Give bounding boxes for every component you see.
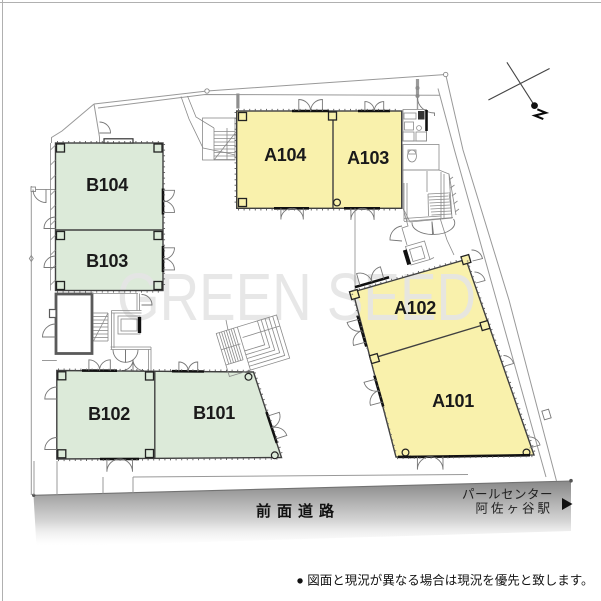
- svg-text:前面道路: 前面道路: [256, 502, 340, 520]
- svg-text:パールセンター: パールセンター: [462, 488, 553, 502]
- svg-text:● 図面と現況が異なる場合は現況を優先と致します。: ● 図面と現況が異なる場合は現況を優先と致します。: [296, 573, 593, 588]
- svg-text:B101: B101: [193, 403, 235, 423]
- svg-text:B104: B104: [86, 175, 128, 195]
- svg-text:阿佐ヶ谷駅: 阿佐ヶ谷駅: [475, 502, 553, 516]
- svg-text:A103: A103: [347, 148, 389, 168]
- svg-text:A102: A102: [394, 298, 436, 318]
- svg-text:B103: B103: [86, 251, 128, 271]
- svg-text:A101: A101: [432, 391, 474, 411]
- svg-text:B102: B102: [88, 404, 130, 424]
- svg-text:A104: A104: [264, 145, 306, 165]
